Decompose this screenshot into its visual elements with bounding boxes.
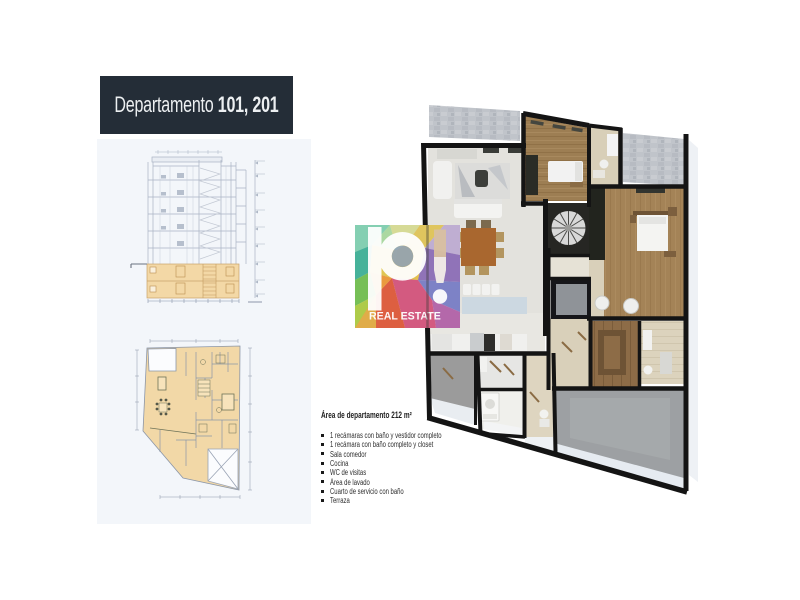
svg-text:REAL ESTATE: REAL ESTATE <box>369 311 441 323</box>
